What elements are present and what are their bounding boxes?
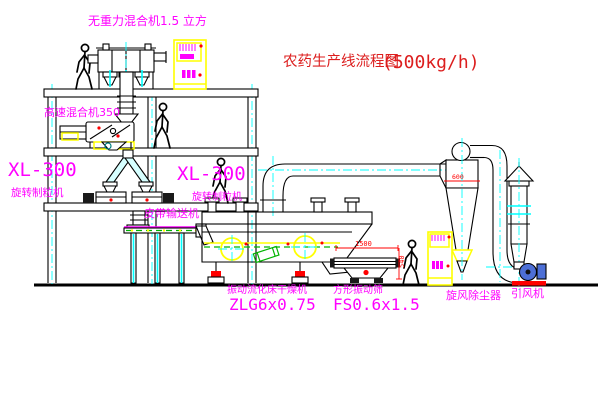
granulator-right-model-label: XL-300 [177,163,246,185]
capacity-label: (500kg/h) [382,52,480,73]
screen-length-dimension: 1500 [355,240,372,248]
diagram-canvas: 无重力混合机1.5 立方 农药生产线流程图 (500kg/h) 高速混合机350… [0,0,600,403]
dryer-model-label: ZLG6x0.75 [229,295,316,314]
granulator-left-model-label: XL-300 [8,159,77,181]
induced-draft-fan [512,262,546,286]
granulator-right-name-label: 旋转制粒机 [192,190,242,203]
fan-label: 引风机 [511,286,544,300]
high-speed-mixer-label: 高速混合机350 [44,105,120,119]
belt-conveyor-label: 皮带输送机 [144,206,199,220]
belt-conveyor [124,224,213,283]
worker-roof [76,44,92,89]
screen-height-dimension: 540 [398,255,406,268]
control-cabinet-upper [174,40,206,89]
process-flow-diagram: 无重力混合机1.5 立方 农药生产线流程图 (500kg/h) 高速混合机350… [0,0,600,403]
dryer-exhaust-duct [258,156,458,216]
granulator-left-name-label: 旋转制粒机 [11,186,64,199]
vibrating-screen [330,245,402,283]
rotary-granulators [83,192,174,203]
control-cabinet-lower [428,232,452,285]
cyclone-label: 旋风除尘器 [446,288,501,302]
gravity-mixer-label: 无重力混合机1.5 立方 [88,13,207,28]
screen-model-label: FS0.6x1.5 [333,295,420,314]
cyclone-body-dimension: 600 [452,173,464,181]
high-speed-mixer [60,122,134,150]
